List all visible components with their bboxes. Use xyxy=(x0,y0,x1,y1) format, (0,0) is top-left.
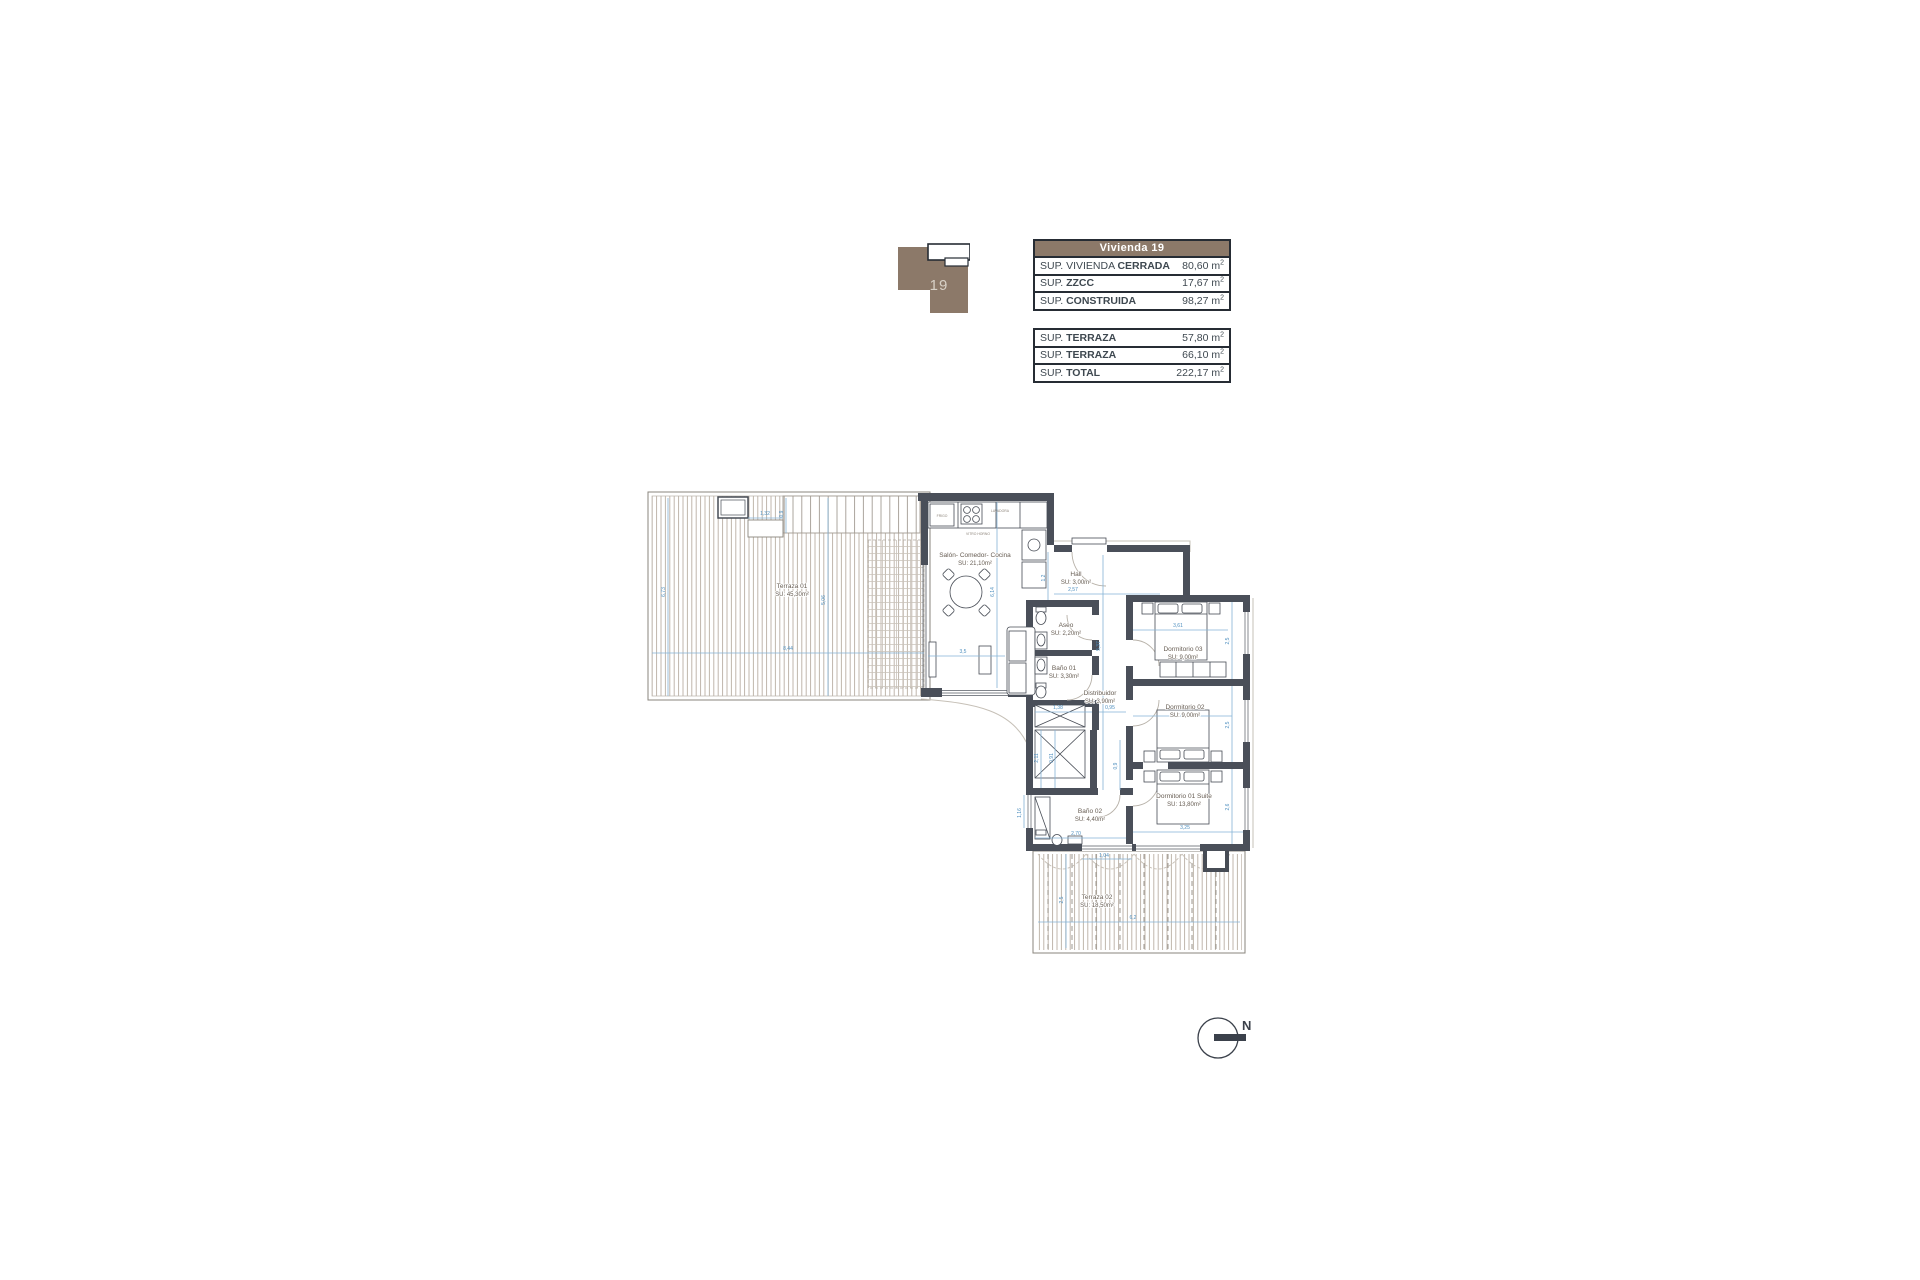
room-label: Terraza 01 xyxy=(777,583,808,590)
nightstand xyxy=(1144,751,1155,762)
dim-label: 2,5 xyxy=(1225,637,1231,644)
nightstand xyxy=(1211,771,1222,782)
row-label: SUP. VIVIENDA CERRADA xyxy=(1040,260,1170,272)
pillow xyxy=(1160,772,1180,781)
dim-label: 1,16 xyxy=(1017,808,1023,818)
room-label: Distribuidor xyxy=(1084,690,1118,697)
toilet-tank xyxy=(1036,830,1046,835)
dining-table xyxy=(950,576,982,608)
window-dorm02 xyxy=(1243,700,1250,742)
room-label: Salón- Comedor- Cocina xyxy=(939,552,1011,559)
sink-basin xyxy=(1028,539,1040,551)
window-south-1 xyxy=(1082,844,1132,851)
nightstand xyxy=(1209,603,1220,614)
room-label: Dormitorio 02 xyxy=(1165,704,1204,711)
row-value: 17,67 m2 xyxy=(1182,277,1224,289)
nightstand xyxy=(1211,751,1222,762)
hob-burner xyxy=(964,507,971,514)
room-label: Baño 02 xyxy=(1078,808,1103,815)
nightstand xyxy=(1142,603,1153,614)
pillow xyxy=(1160,750,1180,759)
dim-label: 2,5 xyxy=(1225,721,1231,728)
dim-label: 3,5 xyxy=(960,649,967,655)
entrance-door-leaf xyxy=(1072,538,1106,544)
dim-label: 5,37 xyxy=(1096,641,1102,651)
room-label: Dormitorio 01 Suite xyxy=(1156,793,1212,800)
washbasin-bowl xyxy=(1037,634,1045,646)
sofa-cushion xyxy=(1009,631,1026,661)
terrace-step xyxy=(748,520,783,537)
unit-badge-icon: 19 xyxy=(896,243,970,315)
dim-label: 1,38 xyxy=(1053,705,1063,711)
appliance-label: FRIGO xyxy=(937,514,948,518)
surface-table: Vivienda 19 SUP. VIVIENDA CERRADA 80,60 … xyxy=(1033,239,1231,311)
table-row: SUP. ZZCC 17,67 m2 xyxy=(1035,276,1229,294)
appliance-label: VITRO HORNO xyxy=(966,532,990,536)
surface-table-header: Vivienda 19 xyxy=(1035,241,1229,258)
dim-label: 2,70 xyxy=(1071,831,1081,837)
pillow xyxy=(1184,772,1204,781)
sofa-cushion xyxy=(1009,663,1026,693)
table-row: SUP. TOTAL 222,17 m2 xyxy=(1035,365,1229,381)
table-row: SUP. TERRAZA 57,80 m2 xyxy=(1035,330,1229,348)
row-value: 98,27 m2 xyxy=(1182,295,1224,307)
toilet xyxy=(1036,686,1046,698)
dining-chair xyxy=(978,568,991,581)
row-value: 57,80 m2 xyxy=(1182,332,1224,344)
table-row: SUP. TERRAZA 66,10 m2 xyxy=(1035,348,1229,366)
room-label: Baño 01 xyxy=(1052,665,1077,672)
row-value: 80,60 m2 xyxy=(1182,260,1224,272)
room-area: SU: 9,00m² xyxy=(1168,655,1198,661)
dim-label: 8,44 xyxy=(783,646,793,652)
dim-label: 0,95 xyxy=(1105,705,1115,711)
toilet xyxy=(1036,612,1046,625)
row-label: SUP. TOTAL xyxy=(1040,367,1100,379)
stair-band xyxy=(783,496,920,533)
room-area: SU: 3,30m² xyxy=(1049,674,1079,680)
nightstand xyxy=(1144,771,1155,782)
appliance-label: LAVADORA xyxy=(991,509,1010,513)
window-bano02 xyxy=(1026,795,1033,828)
room-label: Terraza 02 xyxy=(1082,894,1113,901)
row-label: SUP. ZZCC xyxy=(1040,277,1094,289)
compass-needle xyxy=(1214,1034,1246,1041)
window-south-2 xyxy=(1136,844,1200,851)
dining-chair xyxy=(942,568,955,581)
washbasin xyxy=(1068,836,1082,844)
dim-label: 0,9 xyxy=(779,510,785,517)
tv-sideboard xyxy=(929,642,936,677)
dorm02-door-swing xyxy=(1133,700,1159,726)
room-area: SU: 21,10m² xyxy=(958,561,992,567)
dim-label: 6,2 xyxy=(1130,915,1137,921)
row-value: 222,17 m2 xyxy=(1176,367,1224,379)
footprint-notch-small xyxy=(945,258,968,266)
room-label: Hall xyxy=(1070,571,1082,578)
floor-plan: 8,44 6,73 5,06 1,32 0,9 6,14 3,5 1,2 2,5… xyxy=(630,480,1290,1100)
parcel-corner-curve xyxy=(921,699,1029,748)
pergola-grid xyxy=(868,540,924,688)
unit-badge: 19 xyxy=(896,243,970,320)
room-label: Aseo xyxy=(1059,622,1074,629)
hob-burner xyxy=(964,516,971,523)
dim-label: 6,73 xyxy=(661,587,667,597)
pillow xyxy=(1182,604,1202,613)
toilet xyxy=(1052,835,1062,846)
row-label: SUP. TERRAZA xyxy=(1040,332,1116,344)
unit-number: 19 xyxy=(930,277,949,294)
room-label: Dormitorio 03 xyxy=(1163,646,1202,653)
room-area: SU: 13,80m² xyxy=(1167,802,1201,808)
table-row: SUP. VIVIENDA CERRADA 80,60 m2 xyxy=(1035,258,1229,276)
north-label: N xyxy=(1242,1018,1251,1033)
dining-chair xyxy=(978,604,991,617)
room-area: SU: 2,20m² xyxy=(1051,631,1081,637)
room-area: SU: 45,30m² xyxy=(775,592,809,598)
room-area: SU: 3,00m² xyxy=(1061,580,1091,586)
window-dorm01 xyxy=(1243,788,1250,830)
dim-label: 3,25 xyxy=(1180,825,1190,831)
row-value: 66,10 m2 xyxy=(1182,349,1224,361)
pillar xyxy=(1205,848,1227,870)
room-area: SU: 18,50m² xyxy=(1080,903,1114,909)
dim-label: 0,9 xyxy=(1113,762,1119,769)
dim-label: 2,5 xyxy=(1059,896,1065,903)
room-area: SU: 4,40m² xyxy=(1075,817,1105,823)
coffee-table xyxy=(979,646,991,674)
compass: N xyxy=(1198,1018,1251,1058)
table-row: SUP. CONSTRUIDA 98,27 m2 xyxy=(1035,293,1229,309)
dim-label: 3,61 xyxy=(1173,623,1183,629)
hob-burner xyxy=(973,507,980,514)
dim-label: 5,06 xyxy=(821,595,827,605)
dorm01-door-swing xyxy=(1133,780,1159,806)
dim-label: 6,14 xyxy=(990,587,996,597)
dim-label: 2,6 xyxy=(1225,803,1231,810)
hob-burner xyxy=(973,516,980,523)
dim-label: 0,91 xyxy=(1049,753,1055,763)
dim-label: 1,2 xyxy=(1041,574,1047,581)
dim-label: 1,04 xyxy=(1099,853,1109,859)
totals-table: SUP. TERRAZA 57,80 m2 SUP. TERRAZA 66,10… xyxy=(1033,328,1231,383)
row-label: SUP. CONSTRUIDA xyxy=(1040,295,1136,307)
dining-chair xyxy=(942,604,955,617)
window-dorm03 xyxy=(1243,612,1250,654)
washbasin-bowl xyxy=(1037,659,1045,671)
dim-label: 2,11 xyxy=(1034,753,1040,763)
dim-label: 1,32 xyxy=(760,511,770,517)
plan-sheet: 19 Vivienda 19 SUP. VIVIENDA CERRADA 80,… xyxy=(0,0,1920,1280)
dim-label: 2,57 xyxy=(1068,587,1078,593)
room-area: SU: 3,90m² xyxy=(1085,699,1115,705)
row-label: SUP. TERRAZA xyxy=(1040,349,1116,361)
room-area: SU: 9,00m² xyxy=(1170,713,1200,719)
pillow xyxy=(1158,604,1178,613)
pillow xyxy=(1184,750,1204,759)
